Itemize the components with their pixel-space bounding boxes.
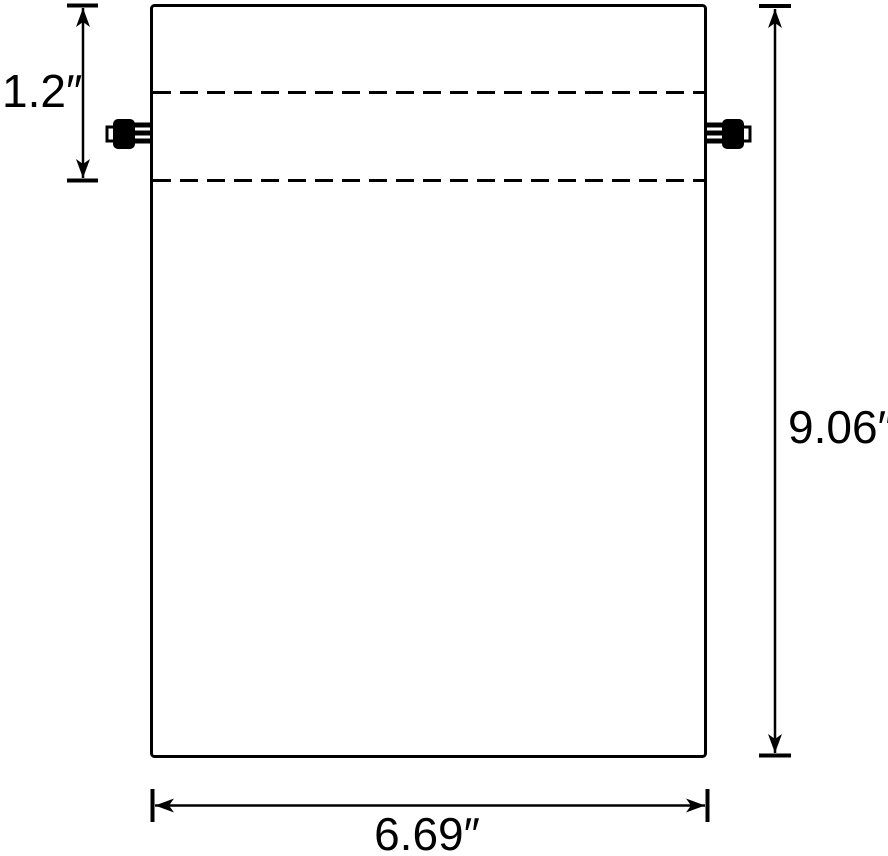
hem-height-label: 1.2″ [2, 68, 82, 114]
height-dimension-arrow [759, 6, 791, 756]
cord-strand [705, 123, 724, 128]
cord-strand [133, 123, 152, 128]
cord-strand [133, 131, 152, 136]
bag-outline [152, 6, 706, 757]
product-dimension-diagram: 1.2″ 9.06″ 6.69″ [0, 0, 888, 856]
bag-width-label: 6.69″ [327, 811, 527, 856]
cord-strand [705, 139, 724, 144]
bag-height-label: 9.06″ [788, 404, 888, 450]
cord-strand [133, 139, 152, 144]
cord-lock-body [113, 119, 135, 149]
cord-lock-body [722, 119, 744, 149]
cord-strand [705, 131, 724, 136]
cord-lock-right-icon [705, 119, 750, 149]
cord-lock-left-icon [107, 119, 152, 149]
diagram-drawing [0, 0, 888, 856]
